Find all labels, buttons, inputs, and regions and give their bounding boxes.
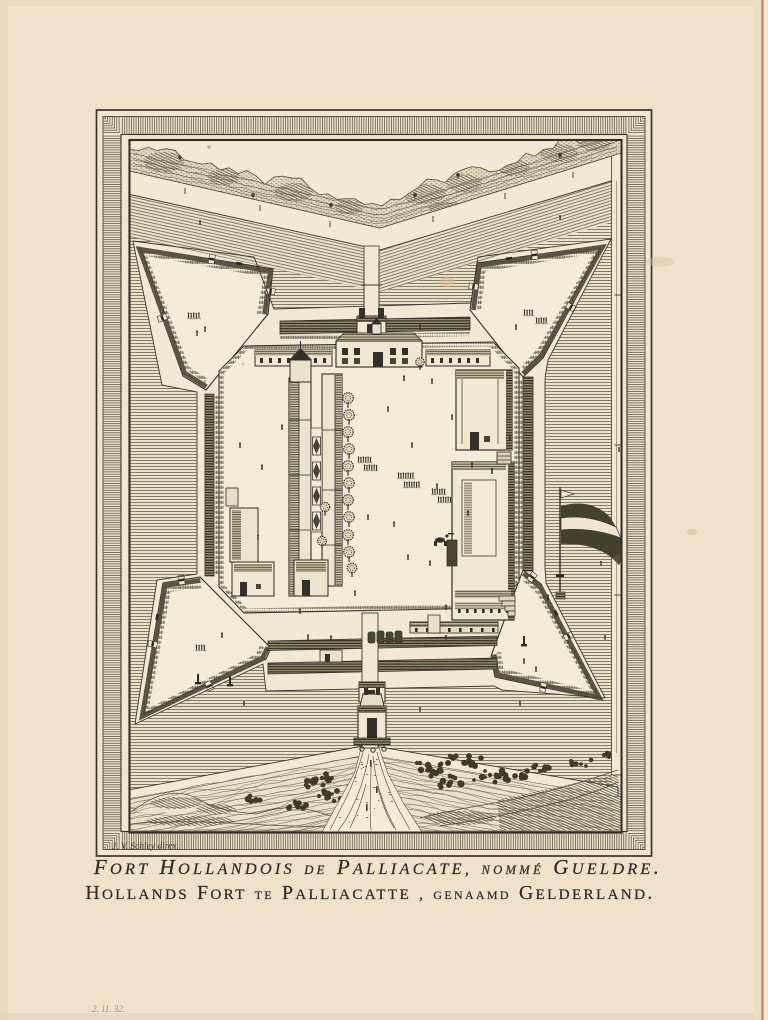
svg-text:HOLLANDS FORT TE PALLIACATTE ,: HOLLANDS FORT TE PALLIACATTE , GENAAMD G… bbox=[85, 882, 654, 904]
svg-text:J. V. Schley direx.: J. V. Schley direx. bbox=[112, 841, 179, 852]
svg-text:FORT HOLLANDOIS DE PALLIACATE,: FORT HOLLANDOIS DE PALLIACATE, NOMMÉ GUE… bbox=[93, 855, 662, 879]
svg-text:2. 11. 32.: 2. 11. 32. bbox=[92, 1004, 125, 1014]
